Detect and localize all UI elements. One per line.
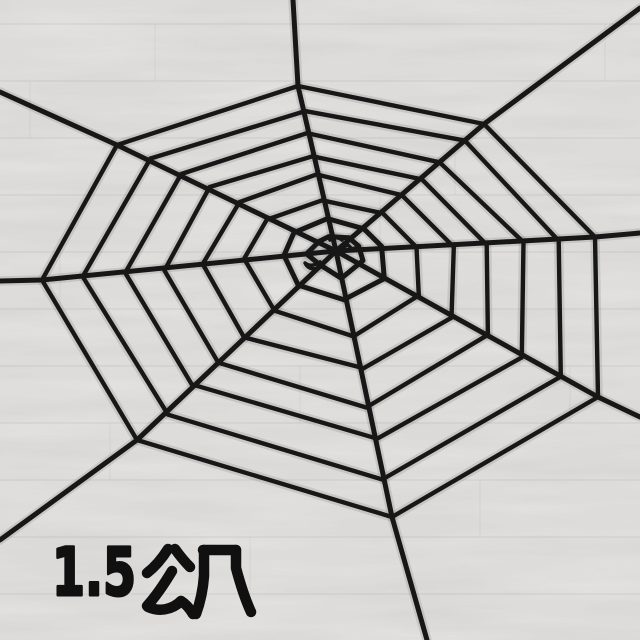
product-photo: 1.5	[0, 0, 640, 640]
spider-web-photo: 1.5	[0, 0, 640, 640]
size-label-numeric: 1.5	[52, 534, 136, 611]
